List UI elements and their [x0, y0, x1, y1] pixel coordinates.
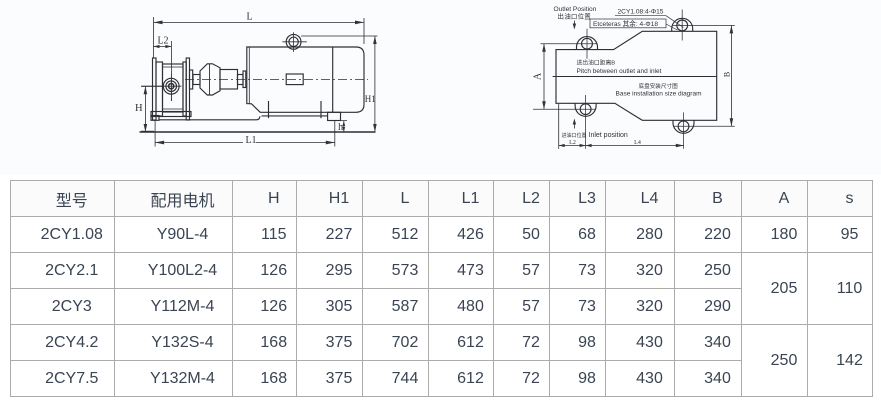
svg-text:L: L [246, 12, 252, 23]
svg-text:L4: L4 [634, 140, 641, 146]
svg-text:Pitch between outlet and inlet: Pitch between outlet and inlet [577, 68, 662, 75]
svg-text:L2: L2 [569, 140, 576, 146]
svg-text:A: A [533, 72, 544, 80]
svg-text:出油口位置: 出油口位置 [558, 12, 592, 21]
svg-text:H1: H1 [365, 94, 376, 104]
svg-text:进油口位置: 进油口位置 [562, 132, 587, 139]
svg-text:2CY1.08:4-Φ15: 2CY1.08:4-Φ15 [618, 9, 664, 16]
svg-text:Etceteras 其余: 4-Φ18: Etceteras 其余: 4-Φ18 [593, 19, 658, 28]
svg-text:B: B [722, 72, 731, 77]
svg-text:Inlet position: Inlet position [589, 132, 628, 139]
svg-text:L1: L1 [245, 135, 256, 146]
svg-text:L2: L2 [157, 36, 168, 47]
svg-text:底盘安装尺寸图: 底盘安装尺寸图 [639, 82, 679, 90]
svg-text:Outlet Position: Outlet Position [554, 6, 597, 13]
svg-text:H: H [135, 103, 143, 114]
svg-text:进出油口距离B: 进出油口距离B [577, 59, 616, 67]
svg-text:Base installation size diagram: Base installation size diagram [616, 91, 702, 98]
